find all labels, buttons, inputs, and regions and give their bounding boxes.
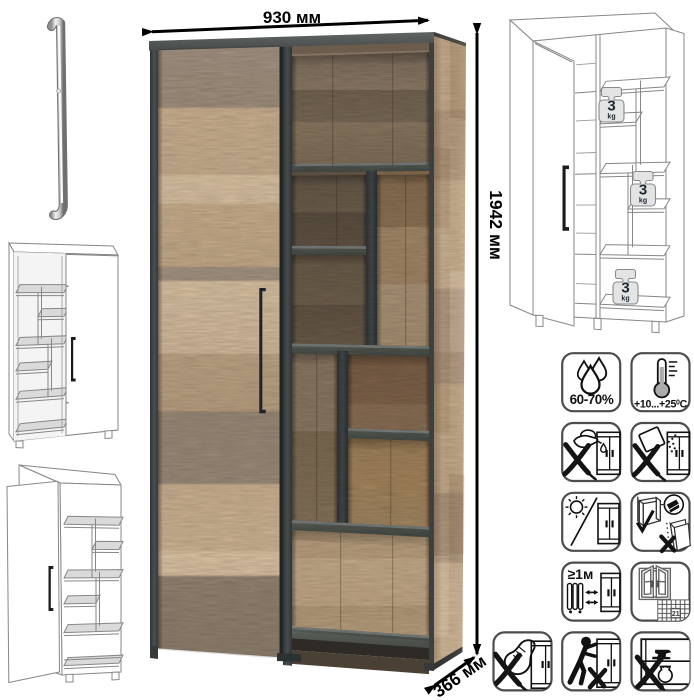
svg-text:+10...+250C: +10...+250C — [634, 399, 688, 411]
svg-text:≥1м: ≥1м — [568, 566, 594, 582]
svg-text:21: 21 — [672, 611, 680, 618]
svg-text:60-70%: 60-70% — [570, 392, 614, 407]
